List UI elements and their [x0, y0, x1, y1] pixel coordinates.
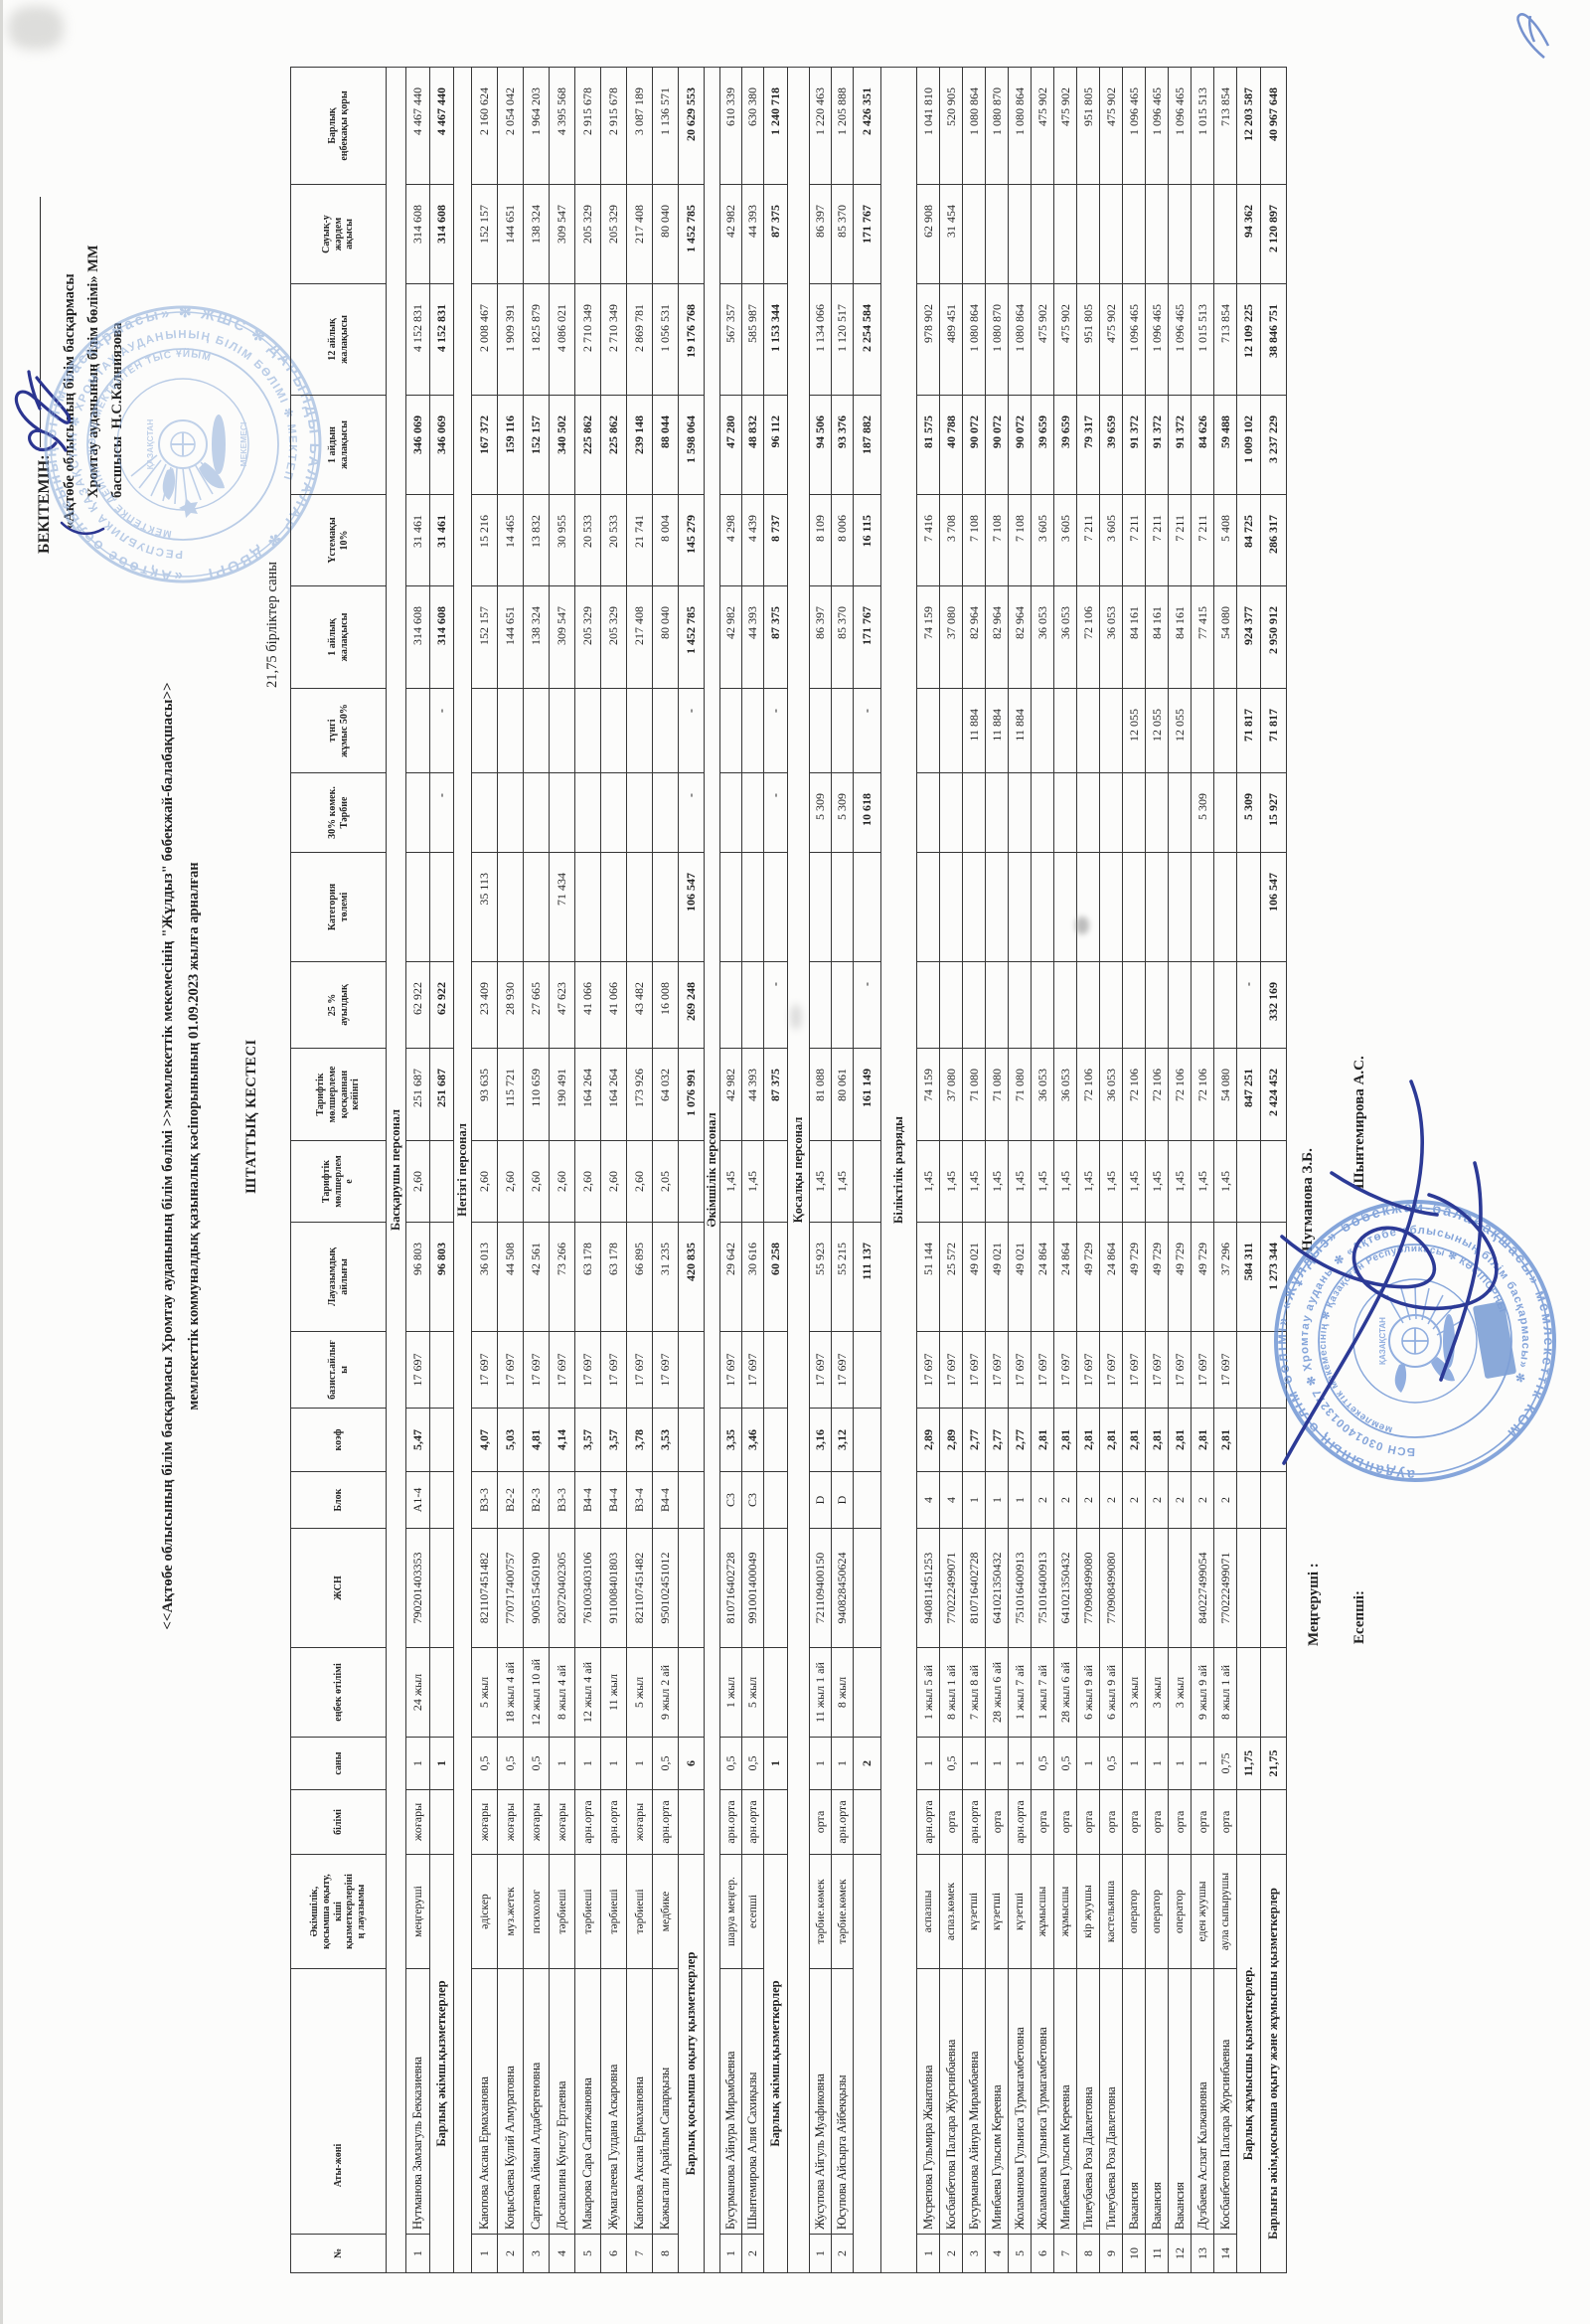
svg-text:ҚАЗАҚСТАН: ҚАЗАҚСТАН — [145, 419, 155, 470]
svg-text:МЕКЕМЕСІ: МЕКЕМЕСІ — [238, 422, 248, 467]
